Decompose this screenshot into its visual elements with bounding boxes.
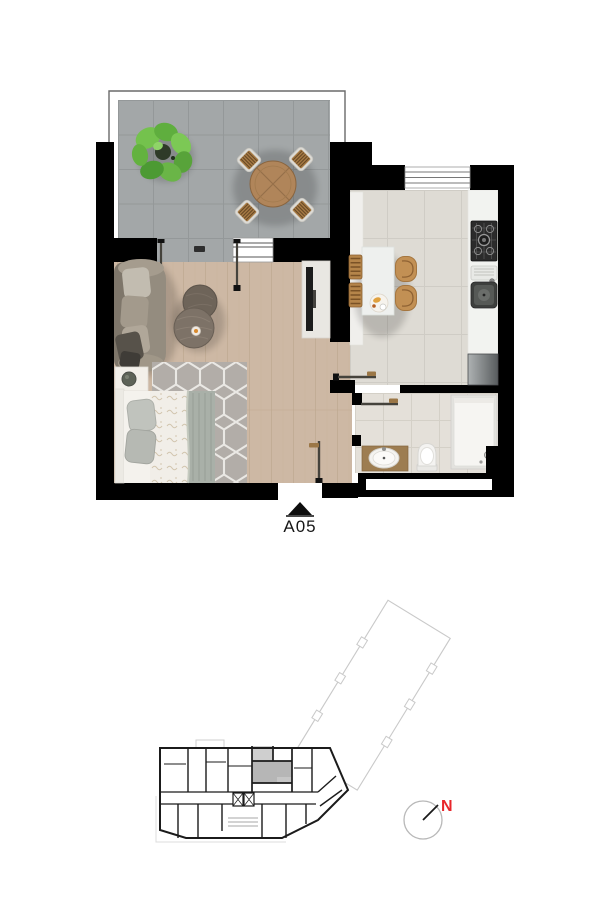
wall-segment — [352, 393, 362, 405]
wall-segment — [352, 435, 361, 446]
unit-label: A05 — [283, 517, 316, 536]
unit-entry-label: A05 — [283, 502, 316, 536]
bar-stool — [396, 286, 417, 311]
nightstand — [115, 367, 148, 391]
pillow — [124, 429, 156, 465]
main-plan: A05 — [96, 91, 514, 536]
key-plan-elevators — [233, 793, 254, 806]
sofa — [114, 259, 166, 372]
wall-segment — [400, 385, 498, 393]
headboard — [115, 389, 124, 483]
wall-segment — [273, 238, 330, 262]
hall-floor — [333, 342, 352, 483]
key-plan — [156, 598, 453, 842]
wall-segment — [322, 483, 358, 498]
bed — [115, 389, 215, 483]
gas-hob — [471, 221, 497, 261]
wall-segment — [96, 483, 278, 500]
key-plan-section — [156, 740, 348, 842]
dining-chair — [349, 283, 362, 307]
key-plan-highlight-step — [277, 777, 292, 783]
vanity-sink — [362, 446, 408, 471]
wall-recess — [366, 479, 492, 490]
wall-segment — [114, 238, 157, 262]
vanity-faucet — [382, 447, 386, 451]
wall-segment — [96, 142, 114, 500]
wall-segment — [330, 380, 355, 393]
door-stopper — [194, 246, 205, 252]
wall-segment — [330, 142, 372, 165]
dining-chair — [349, 255, 362, 279]
north-arrow: N — [404, 798, 453, 839]
wall-segment — [330, 165, 350, 342]
north-label: N — [441, 798, 453, 815]
fridge — [468, 354, 498, 385]
wall-segment — [350, 165, 405, 190]
bar-stool — [396, 257, 417, 282]
tv — [306, 267, 313, 331]
wall-segment — [498, 190, 514, 473]
entry-marker-arrow — [288, 502, 312, 515]
kitchen-window — [405, 167, 470, 188]
floor-plan-drawing: A05 — [0, 0, 612, 900]
floor-plan-page: A05 — [0, 0, 612, 900]
tv-cabinet — [302, 261, 330, 338]
wall-segment — [470, 165, 514, 190]
wall-segment — [486, 446, 514, 473]
pillow — [126, 398, 157, 432]
toilet — [417, 444, 437, 472]
kitchen-island — [362, 247, 394, 315]
terrace-dining-table — [250, 161, 296, 207]
kitchen-sink — [471, 266, 497, 308]
